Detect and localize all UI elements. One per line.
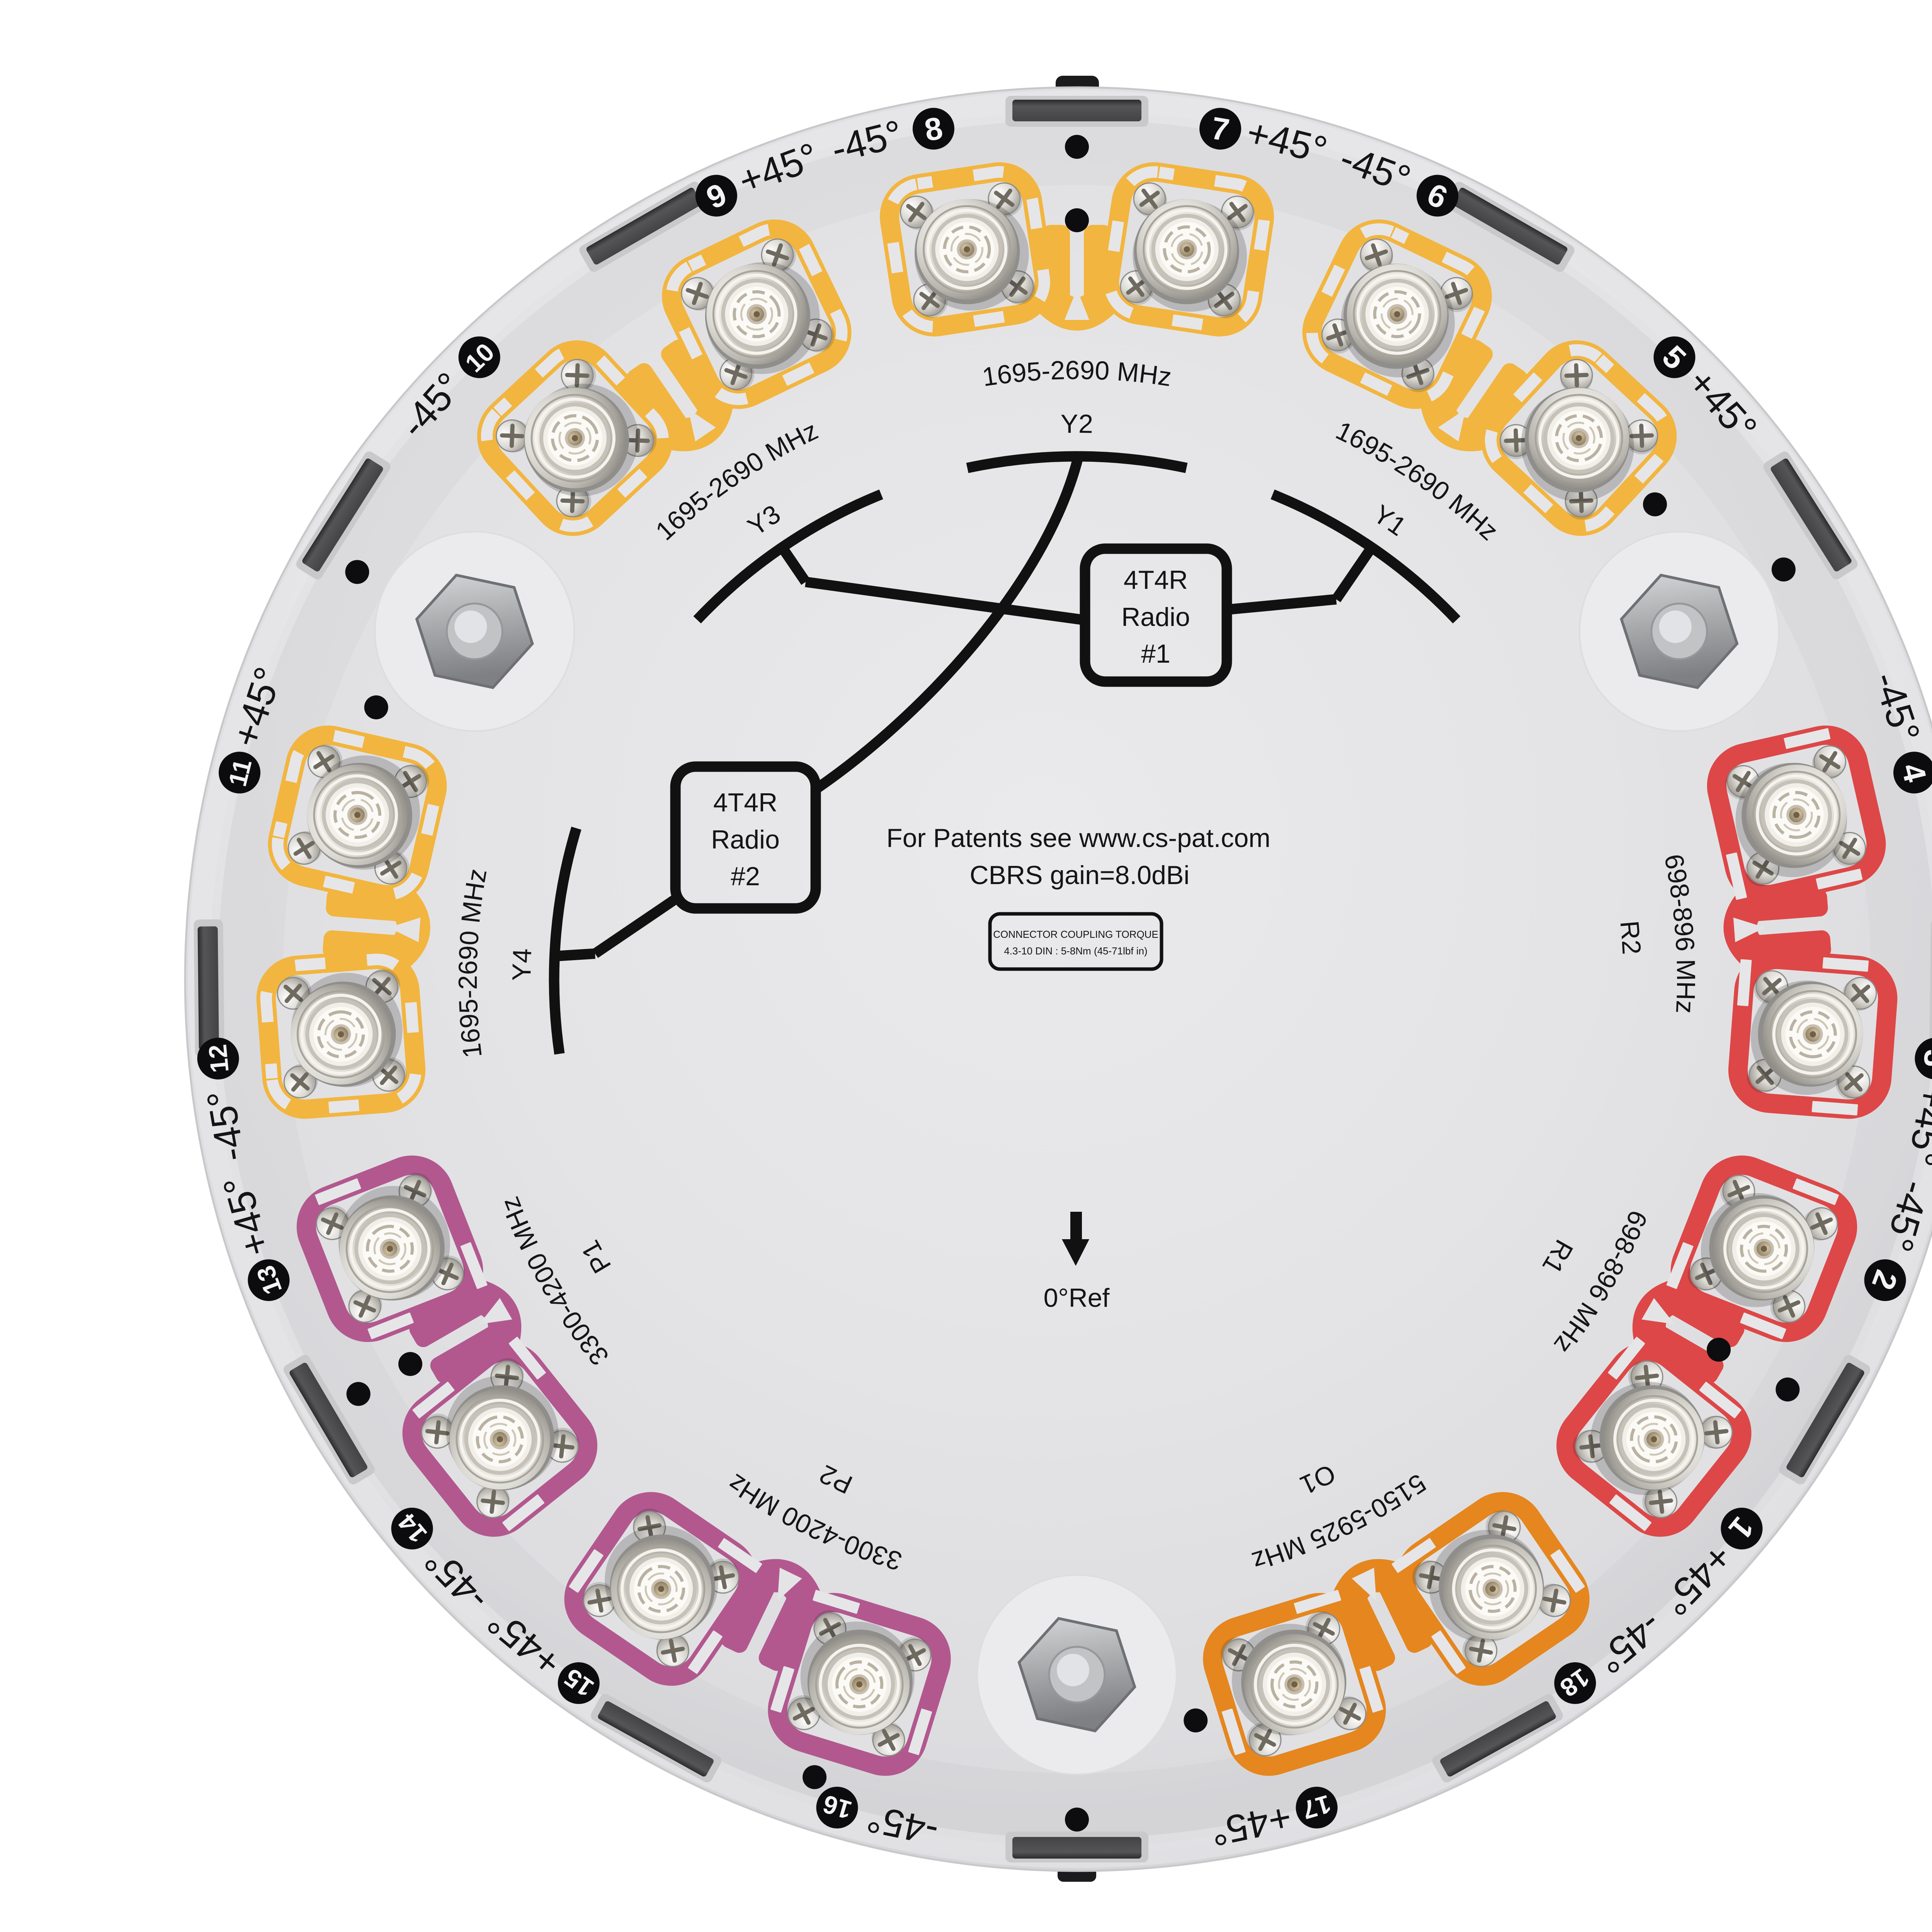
- svg-text:12: 12: [203, 1043, 234, 1074]
- svg-text:4T4R: 4T4R: [1124, 565, 1188, 595]
- svg-text:R2: R2: [1614, 920, 1646, 956]
- svg-text:0°Ref: 0°Ref: [1044, 1283, 1110, 1313]
- svg-text:#2: #2: [731, 862, 760, 891]
- svg-text:Radio: Radio: [1121, 602, 1190, 632]
- svg-text:Y4: Y4: [507, 948, 537, 981]
- svg-text:4.3-10 DIN : 5-8Nm (45-71lbf i: 4.3-10 DIN : 5-8Nm (45-71lbf in): [1004, 945, 1147, 957]
- svg-text:CBRS gain=8.0dBi: CBRS gain=8.0dBi: [970, 861, 1190, 890]
- svg-text:#1: #1: [1141, 639, 1170, 668]
- svg-text:4T4R: 4T4R: [713, 788, 777, 817]
- svg-text:Y2: Y2: [1061, 409, 1094, 439]
- svg-text:For Patents see www.cs-pat.com: For Patents see www.cs-pat.com: [886, 823, 1270, 853]
- svg-text:CONNECTOR COUPLING TORQUE: CONNECTOR COUPLING TORQUE: [993, 929, 1158, 940]
- svg-text:3: 3: [1917, 1048, 1932, 1069]
- svg-text:Radio: Radio: [711, 825, 780, 854]
